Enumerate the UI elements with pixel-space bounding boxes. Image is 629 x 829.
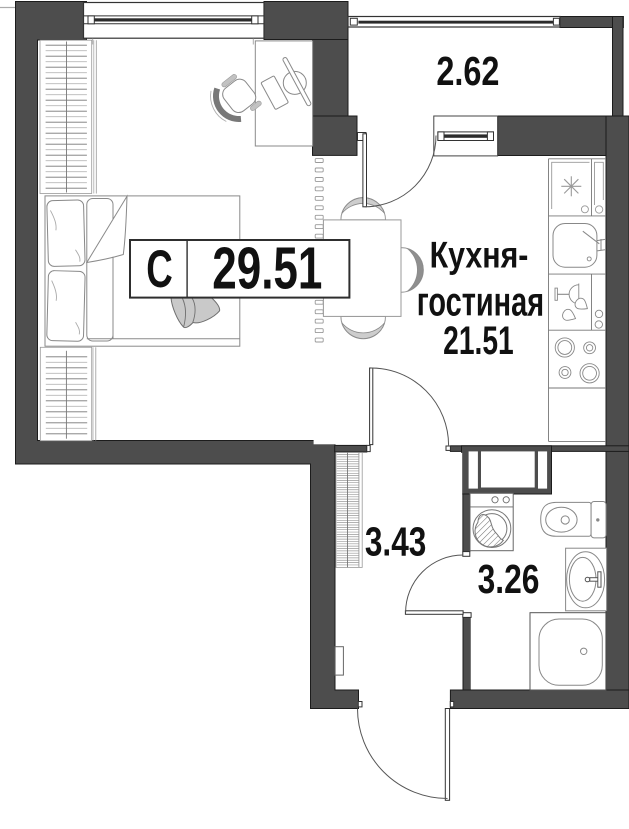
svg-text:29.51: 29.51 — [212, 236, 322, 302]
svg-text:С: С — [146, 239, 173, 298]
svg-text:гостиная: гостиная — [417, 279, 544, 325]
svg-text:3.43: 3.43 — [365, 519, 426, 565]
svg-text:2.62: 2.62 — [436, 49, 499, 94]
svg-text:Кухня-: Кухня- — [430, 236, 529, 276]
svg-text:21.51: 21.51 — [443, 319, 514, 363]
svg-text:3.26: 3.26 — [478, 556, 540, 602]
